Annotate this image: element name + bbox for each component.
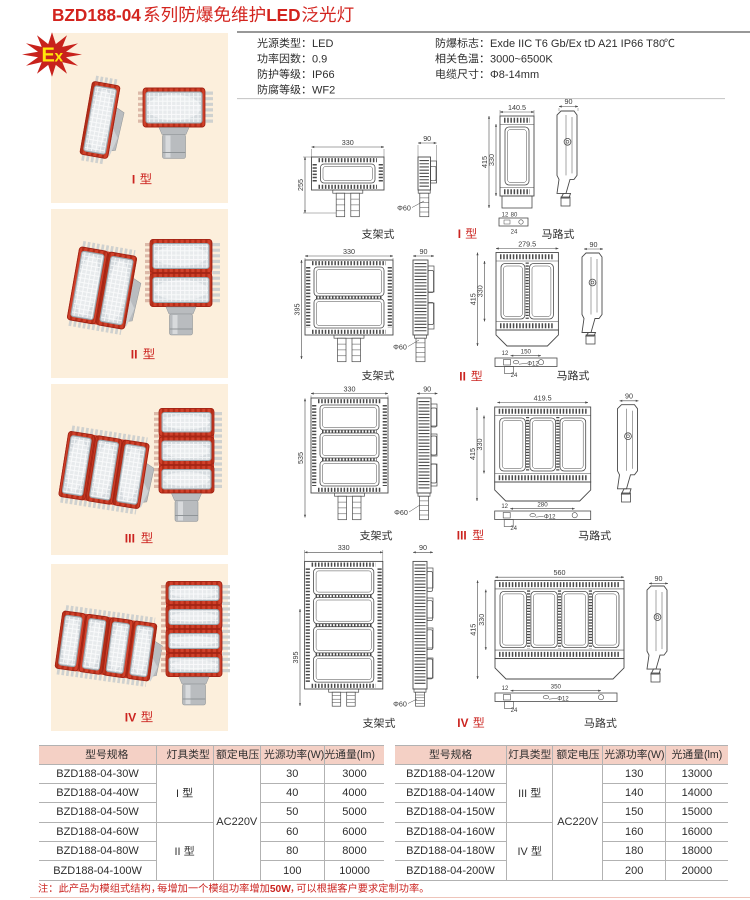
svg-text:330: 330 bbox=[487, 154, 496, 166]
svg-text:Φ60: Φ60 bbox=[393, 343, 407, 352]
svg-text:12: 12 bbox=[502, 213, 509, 219]
svg-text:II: II bbox=[131, 348, 138, 362]
svg-text:Φ60: Φ60 bbox=[397, 204, 411, 213]
svg-text:90: 90 bbox=[625, 392, 633, 401]
svg-text:I: I bbox=[132, 173, 135, 187]
svg-text:Φ60: Φ60 bbox=[393, 700, 407, 709]
svg-text:(lm): (lm) bbox=[357, 749, 375, 761]
svg-text:III: III bbox=[125, 532, 135, 546]
svg-text:255: 255 bbox=[296, 179, 305, 191]
svg-text:280: 280 bbox=[537, 501, 548, 508]
svg-text:330: 330 bbox=[475, 285, 484, 297]
svg-text:IV: IV bbox=[125, 711, 137, 725]
svg-text:330: 330 bbox=[338, 543, 350, 552]
svg-text:Exde IIC T6 Gb/Ex tD A21 IP66: Exde IIC T6 Gb/Ex tD A21 IP66 T80 bbox=[490, 38, 665, 50]
svg-text:(W): (W) bbox=[307, 749, 324, 761]
svg-text:III: III bbox=[457, 529, 467, 543]
svg-text:330: 330 bbox=[343, 247, 355, 256]
svg-text:90: 90 bbox=[423, 384, 431, 393]
svg-text:(W): (W) bbox=[648, 749, 665, 761]
svg-text:I: I bbox=[176, 788, 179, 800]
svg-text:90: 90 bbox=[565, 97, 573, 106]
svg-text:LED: LED bbox=[266, 5, 300, 25]
svg-text:80: 80 bbox=[511, 213, 518, 219]
svg-text:IP66: IP66 bbox=[312, 69, 335, 81]
svg-text:WF2: WF2 bbox=[312, 85, 335, 97]
svg-text:x: x bbox=[55, 49, 64, 66]
svg-text:E: E bbox=[42, 45, 55, 67]
svg-text:LED: LED bbox=[312, 38, 333, 50]
svg-text:II: II bbox=[459, 370, 466, 384]
svg-text:330: 330 bbox=[342, 138, 354, 147]
svg-text:419.5: 419.5 bbox=[534, 393, 552, 402]
svg-text:BZD188-04: BZD188-04 bbox=[52, 5, 141, 25]
svg-text:0.9: 0.9 bbox=[312, 54, 327, 66]
svg-text:90: 90 bbox=[590, 240, 598, 249]
svg-text:140.5: 140.5 bbox=[508, 103, 526, 112]
svg-text:24: 24 bbox=[510, 526, 517, 532]
svg-text:330: 330 bbox=[475, 439, 484, 451]
svg-text:Φ60: Φ60 bbox=[394, 508, 408, 517]
svg-text:535: 535 bbox=[296, 452, 305, 464]
svg-text:12: 12 bbox=[501, 504, 508, 510]
svg-text:(lm): (lm) bbox=[704, 749, 722, 761]
svg-text:395: 395 bbox=[293, 304, 302, 316]
svg-text:II: II bbox=[175, 846, 181, 858]
svg-text:90: 90 bbox=[420, 247, 428, 256]
svg-text:24: 24 bbox=[511, 708, 518, 714]
svg-text:IV: IV bbox=[518, 846, 529, 858]
svg-text:III: III bbox=[518, 788, 527, 800]
svg-text:Φ12: Φ12 bbox=[557, 697, 569, 703]
svg-text:560: 560 bbox=[554, 568, 566, 577]
svg-text:Φ8-14mm: Φ8-14mm bbox=[490, 69, 539, 81]
svg-text:24: 24 bbox=[511, 230, 518, 236]
svg-text:90: 90 bbox=[423, 134, 431, 143]
svg-text:330: 330 bbox=[477, 614, 486, 626]
svg-text:Φ12: Φ12 bbox=[544, 515, 556, 521]
svg-text:50W: 50W bbox=[270, 884, 291, 895]
svg-text:3000~6500K: 3000~6500K bbox=[490, 54, 553, 66]
svg-text:IV: IV bbox=[457, 716, 468, 730]
svg-text:I: I bbox=[458, 227, 461, 241]
svg-text:12: 12 bbox=[502, 686, 509, 692]
svg-text:90: 90 bbox=[419, 543, 427, 552]
svg-text:330: 330 bbox=[344, 384, 356, 393]
svg-text:150: 150 bbox=[521, 348, 532, 355]
svg-text:Φ12: Φ12 bbox=[527, 362, 539, 368]
svg-text:279.5: 279.5 bbox=[518, 239, 536, 248]
svg-text:350: 350 bbox=[551, 683, 562, 690]
svg-text:90: 90 bbox=[655, 574, 663, 583]
svg-text:12: 12 bbox=[502, 351, 509, 357]
svg-text:24: 24 bbox=[511, 373, 518, 379]
svg-text:395: 395 bbox=[291, 652, 300, 664]
